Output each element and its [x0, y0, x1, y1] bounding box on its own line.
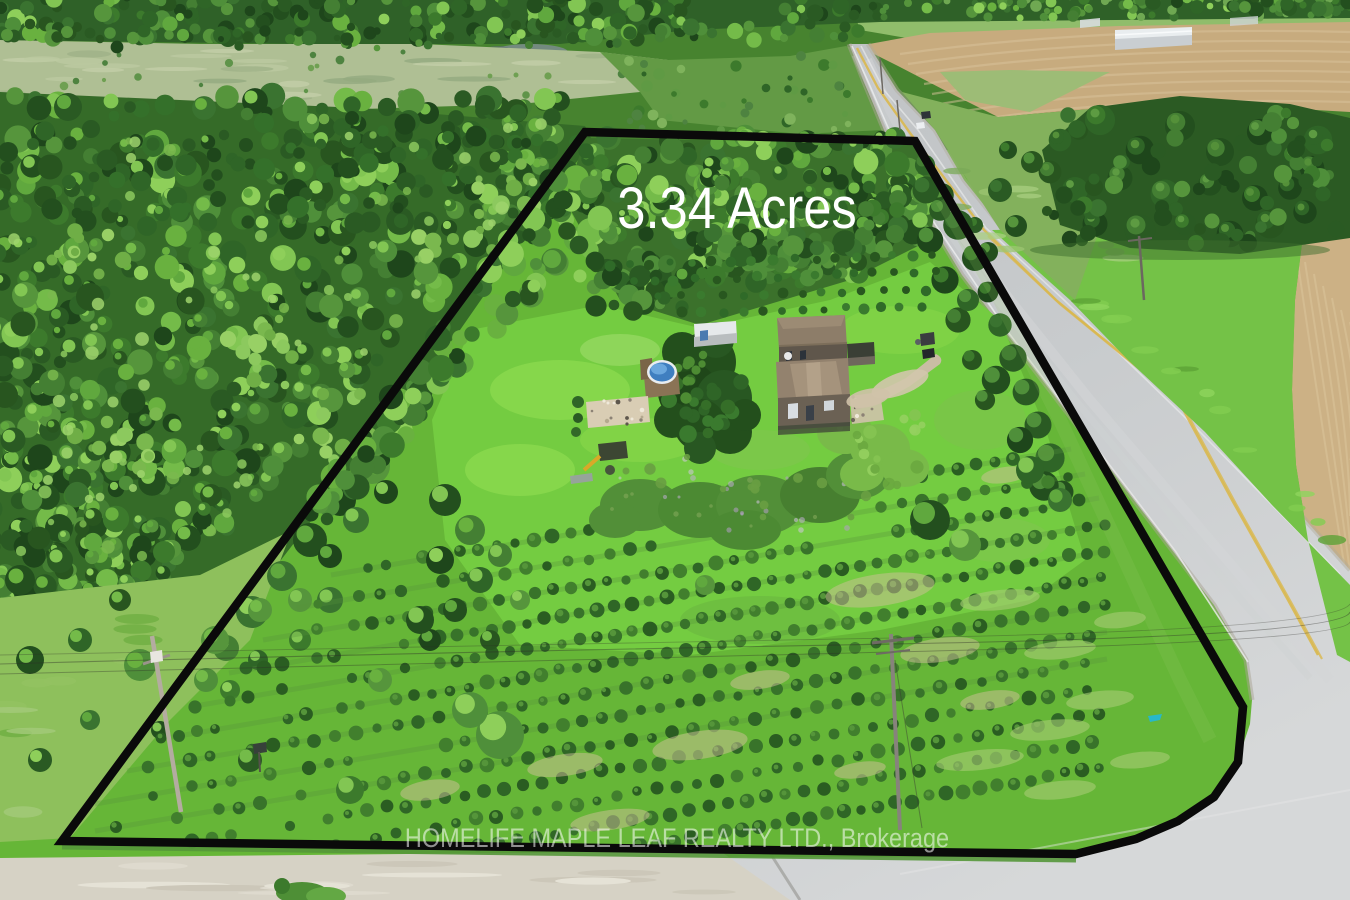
- svg-text:HOMELIFE MAPLE LEAF REALTY LTD: HOMELIFE MAPLE LEAF REALTY LTD., Brokera…: [405, 824, 949, 854]
- svg-text:3.34 Acres: 3.34 Acres: [617, 176, 856, 241]
